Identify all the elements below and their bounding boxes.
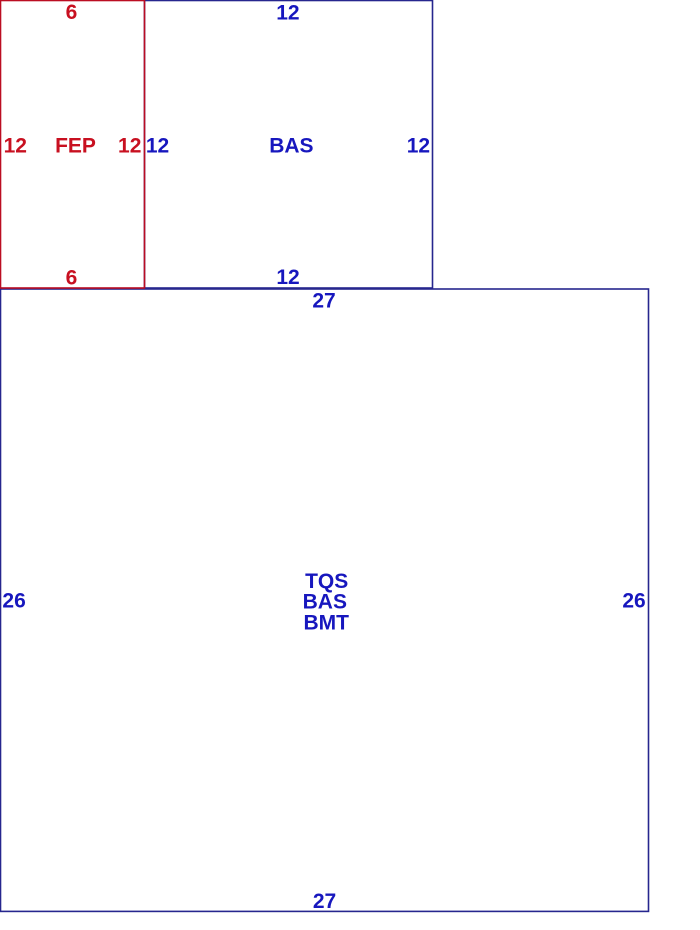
svg-text:12: 12 [146,134,169,157]
svg-text:BMT: BMT [303,612,349,635]
svg-text:12: 12 [276,2,299,25]
svg-text:12: 12 [4,134,27,157]
svg-text:BAS: BAS [303,590,347,613]
svg-text:12: 12 [276,266,299,289]
svg-text:12: 12 [118,134,141,157]
svg-text:12: 12 [407,134,430,157]
svg-text:27: 27 [313,890,336,913]
svg-text:6: 6 [66,266,78,289]
svg-text:26: 26 [622,589,645,612]
svg-text:26: 26 [2,589,25,612]
svg-text:6: 6 [66,1,78,24]
svg-text:BAS: BAS [269,134,313,157]
svg-text:27: 27 [312,289,335,312]
svg-text:FEP: FEP [55,134,96,157]
